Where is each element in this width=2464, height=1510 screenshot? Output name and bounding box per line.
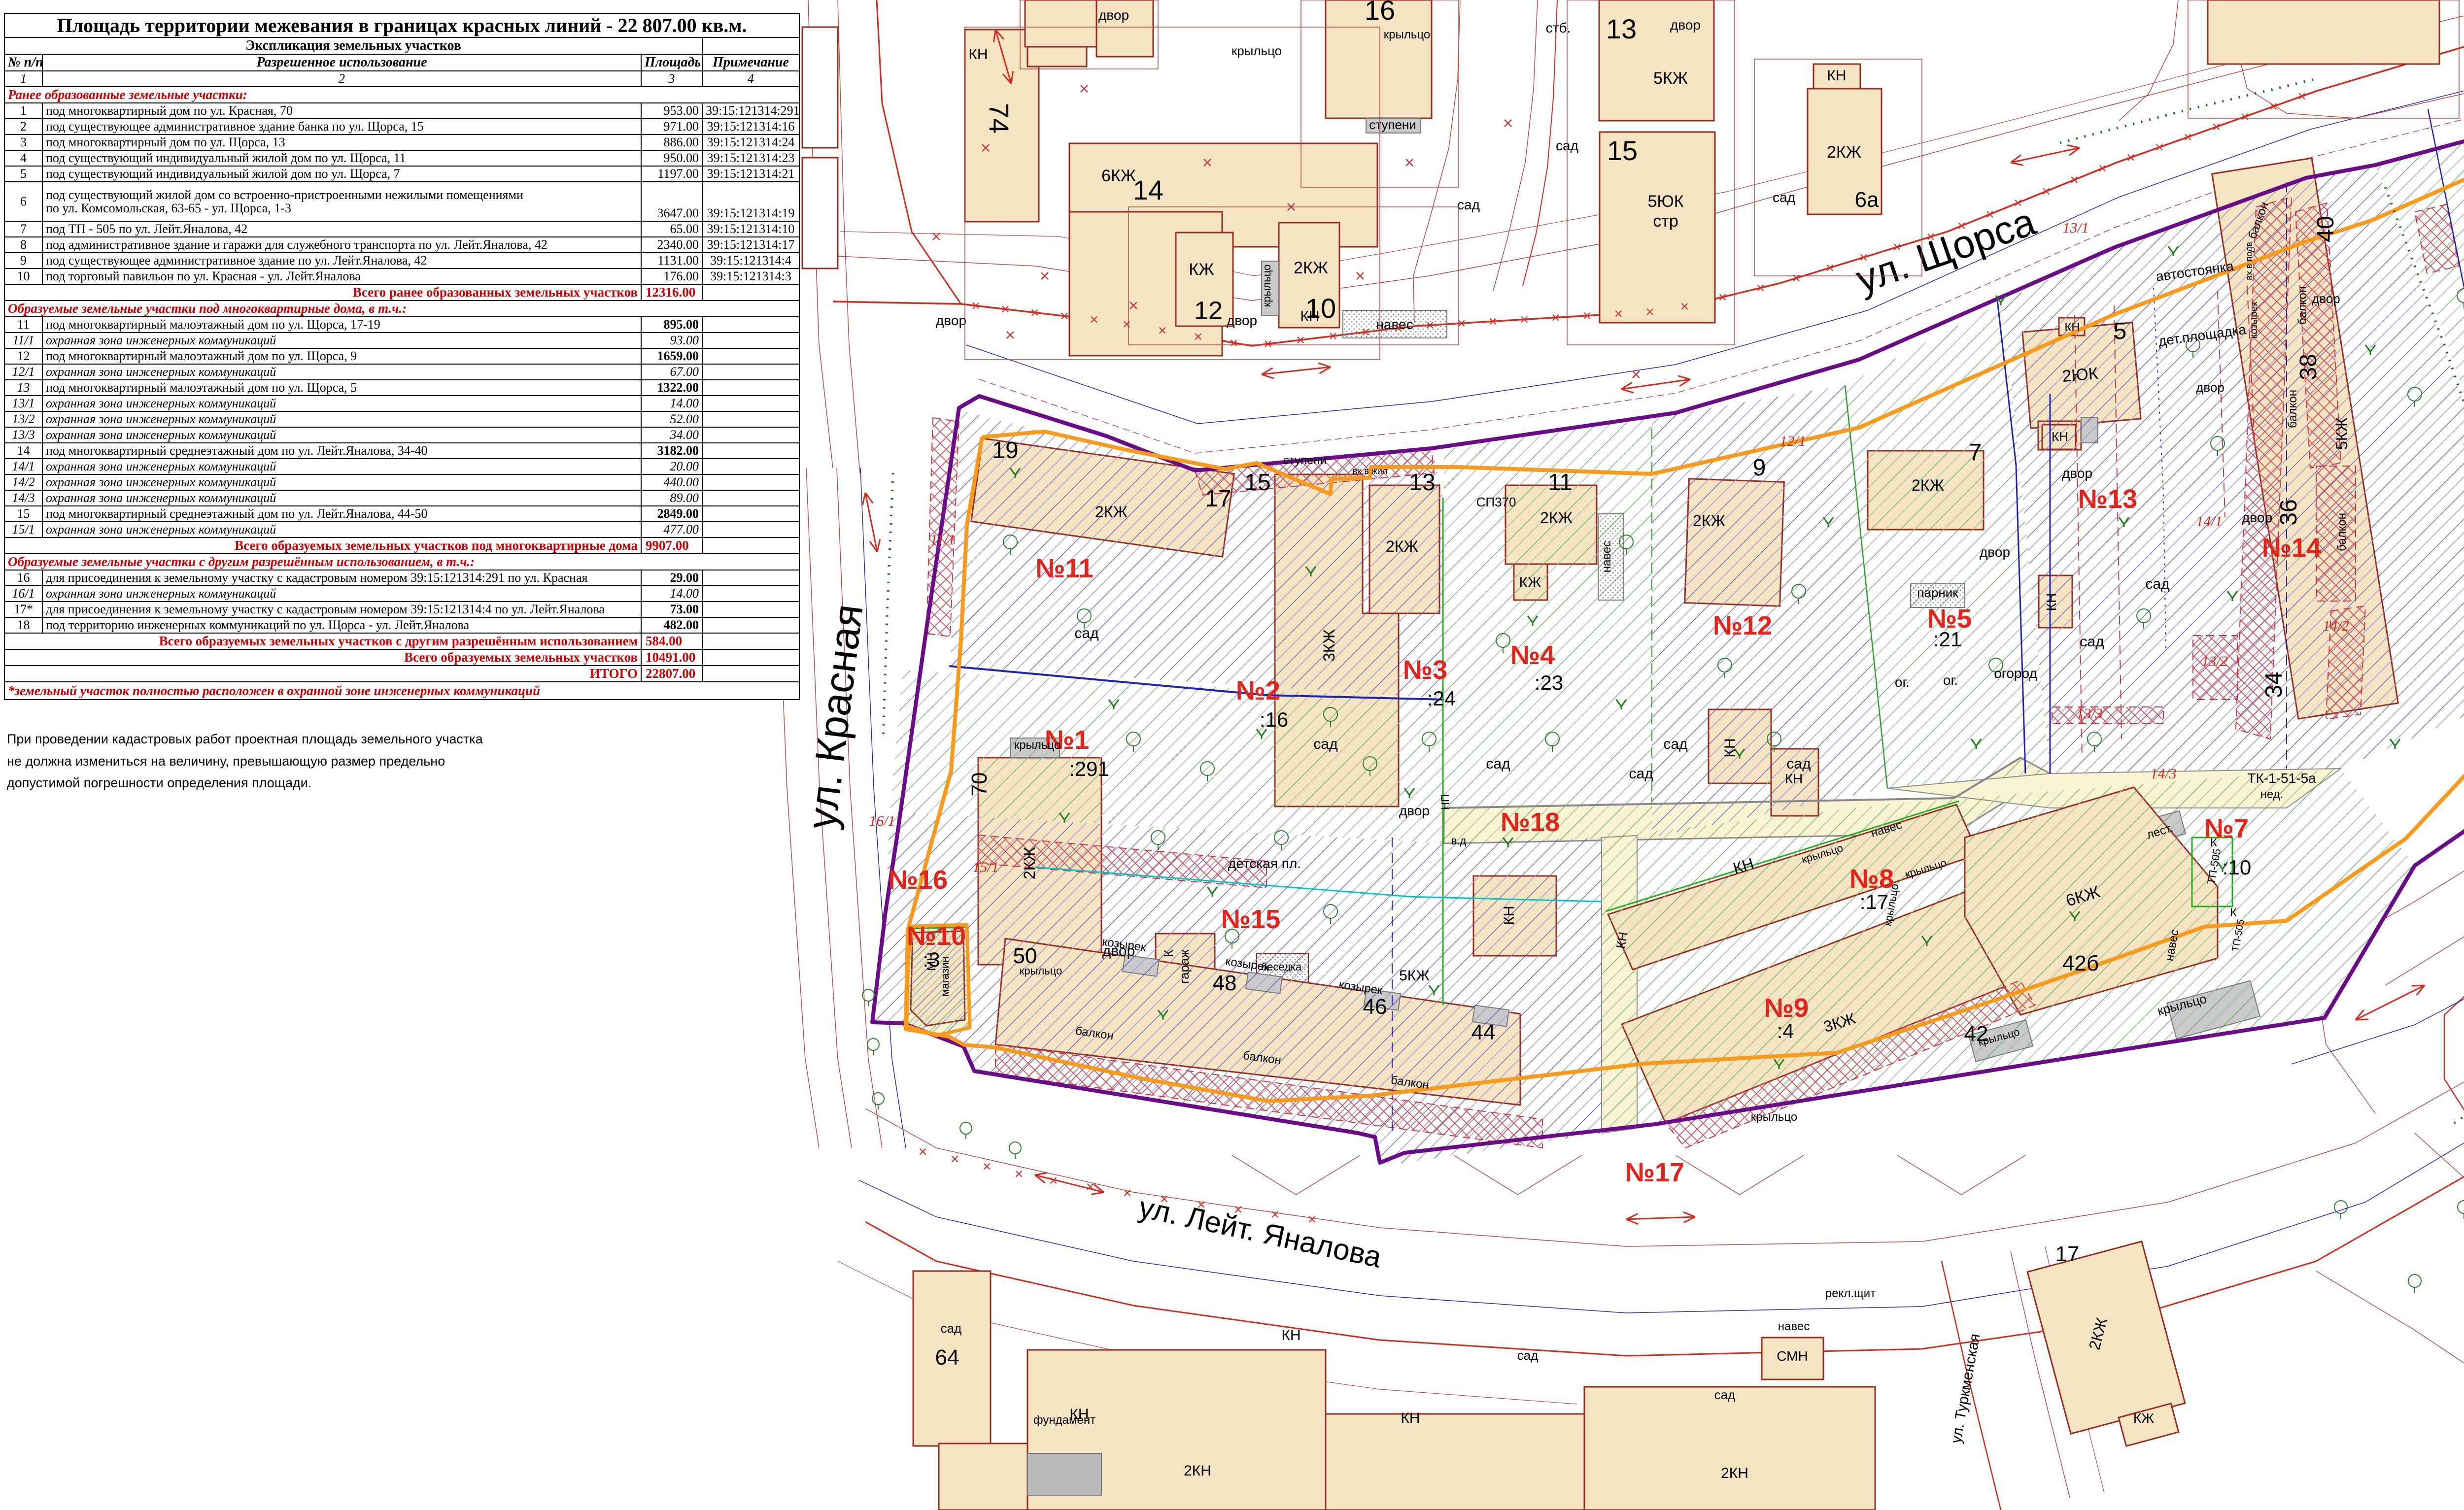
svg-text:КЖ: КЖ <box>1519 574 1541 591</box>
svg-text:крыльцо: крыльцо <box>1751 1110 1797 1124</box>
svg-text:сад: сад <box>941 1321 962 1336</box>
svg-text:17: 17 <box>1205 486 1231 512</box>
svg-text:навес: навес <box>1376 317 1413 332</box>
svg-text:№14: №14 <box>2262 533 2321 563</box>
svg-text:14/1: 14/1 <box>2196 513 2222 530</box>
svg-text:двор: двор <box>2312 291 2340 306</box>
svg-text:навес: навес <box>1600 541 1613 572</box>
svg-text:74: 74 <box>984 103 1015 134</box>
svg-text:11/1: 11/1 <box>930 532 955 548</box>
svg-text:13: 13 <box>1409 470 1435 496</box>
svg-text:70: 70 <box>967 772 992 797</box>
svg-text:двор: двор <box>1227 313 1257 328</box>
svg-text:К: К <box>1161 949 1176 957</box>
svg-text:№3: №3 <box>1403 655 1447 685</box>
svg-text:2КЖ: 2КЖ <box>1095 503 1128 521</box>
svg-text:№11: №11 <box>1035 554 1093 583</box>
svg-text:КН: КН <box>1501 906 1517 925</box>
svg-text:№13: №13 <box>2078 484 2137 514</box>
svg-text:КН: КН <box>1827 67 1846 84</box>
svg-text:5ЮК: 5ЮК <box>1647 192 1683 211</box>
svg-text:16/1: 16/1 <box>869 813 895 829</box>
svg-text:34: 34 <box>2261 671 2287 698</box>
svg-text:48: 48 <box>1213 971 1237 995</box>
svg-text:64: 64 <box>935 1345 959 1370</box>
svg-text::16: :16 <box>1260 708 1288 731</box>
svg-text:двор: двор <box>2196 380 2224 395</box>
svg-text:сад: сад <box>2080 634 2104 650</box>
svg-text:балкон: балкон <box>2335 513 2349 551</box>
svg-text:крыльцо: крыльцо <box>1261 265 1273 307</box>
svg-text:№15: №15 <box>1221 905 1280 934</box>
svg-text:МН: МН <box>925 952 938 971</box>
svg-text::23: :23 <box>1535 671 1563 694</box>
svg-text:ступени: ступени <box>1283 454 1327 467</box>
svg-text:сад: сад <box>1773 190 1795 205</box>
svg-text:2КЖ: 2КЖ <box>1021 847 1038 879</box>
svg-text:5: 5 <box>2114 318 2127 344</box>
svg-text:огород: огород <box>1994 666 2037 681</box>
svg-text:крыльцо: крыльцо <box>1014 738 1061 752</box>
svg-text:ул. Туркменская: ул. Туркменская <box>1948 1333 1984 1445</box>
svg-text:2КЖ: 2КЖ <box>1540 509 1573 527</box>
svg-text:№9: №9 <box>1764 993 1809 1023</box>
svg-text:7: 7 <box>1969 439 1982 466</box>
svg-text:13: 13 <box>1606 13 1637 44</box>
svg-text:13/2: 13/2 <box>2201 653 2227 670</box>
svg-text:№18: №18 <box>1501 807 1560 837</box>
svg-text:42б: 42б <box>2062 951 2099 975</box>
svg-text:сад: сад <box>1663 736 1687 752</box>
svg-text:НП: НП <box>1439 794 1451 810</box>
svg-text:крыльцо: крыльцо <box>1384 28 1430 41</box>
svg-text:двор: двор <box>1980 544 2010 560</box>
svg-text:13/1: 13/1 <box>2062 220 2088 236</box>
svg-text:КН: КН <box>2064 321 2080 334</box>
svg-text:сад: сад <box>1457 197 1480 212</box>
svg-text:14: 14 <box>1133 174 1164 205</box>
svg-text:К: К <box>2230 906 2237 919</box>
svg-text:СП370: СП370 <box>1476 495 1516 509</box>
svg-text:гараж: гараж <box>1177 949 1192 984</box>
svg-text:ТК-1-51-5а: ТК-1-51-5а <box>2247 771 2316 786</box>
svg-text:19: 19 <box>992 437 1018 464</box>
svg-text:№10: №10 <box>907 921 966 951</box>
svg-text:ог.: ог. <box>1895 674 1910 690</box>
svg-text:КЖ: КЖ <box>2133 1410 2154 1426</box>
svg-text:балкон: балкон <box>2296 286 2309 325</box>
svg-text:рекл.щит: рекл.щит <box>1825 1287 1876 1300</box>
svg-text:сад: сад <box>1786 756 1811 772</box>
svg-text:2КН: 2КН <box>1184 1463 1211 1479</box>
svg-text:44: 44 <box>1472 1020 1496 1044</box>
svg-text:11: 11 <box>1548 470 1573 496</box>
svg-text:14/3: 14/3 <box>2150 766 2176 782</box>
svg-text:балкон: балкон <box>2286 390 2299 428</box>
svg-text:36: 36 <box>2276 499 2302 525</box>
svg-text:14/2: 14/2 <box>2323 618 2349 634</box>
svg-text:6а: 6а <box>1855 188 1879 212</box>
svg-text:сад: сад <box>1517 1348 1539 1363</box>
svg-text::291: :291 <box>1069 757 1109 780</box>
svg-text::4: :4 <box>1777 1019 1794 1042</box>
svg-text:навес: навес <box>1778 1320 1810 1333</box>
svg-text:сад: сад <box>1486 756 1510 772</box>
svg-text:№12: №12 <box>1713 611 1772 640</box>
svg-text:детская пл.: детская пл. <box>1228 856 1301 871</box>
svg-text:13/3: 13/3 <box>2076 705 2102 722</box>
svg-text:2КЖ: 2КЖ <box>1294 259 1328 277</box>
svg-text:6КЖ: 6КЖ <box>1101 167 1136 185</box>
svg-text::10: :10 <box>2223 856 2251 879</box>
svg-text:5КЖ: 5КЖ <box>2333 417 2351 450</box>
svg-text::24: :24 <box>1427 687 1456 710</box>
svg-text:КН: КН <box>1401 1410 1420 1426</box>
svg-text:46: 46 <box>1363 995 1387 1019</box>
svg-text:38: 38 <box>2295 354 2322 380</box>
svg-text:9: 9 <box>1753 455 1766 481</box>
svg-text:двор: двор <box>936 313 966 328</box>
svg-text:КН: КН <box>2052 429 2068 444</box>
svg-text:ог.: ог. <box>1943 672 1958 688</box>
svg-text:сад: сад <box>2145 576 2169 592</box>
svg-text:КН: КН <box>1300 308 1319 325</box>
svg-text:2КЖ: 2КЖ <box>1386 537 1418 555</box>
svg-text:двор: двор <box>2062 466 2092 481</box>
svg-text:2КЖ: 2КЖ <box>1912 476 1944 494</box>
svg-text:15: 15 <box>1244 470 1270 496</box>
svg-text:5КЖ: 5КЖ <box>1653 69 1688 88</box>
svg-text:сад: сад <box>1313 736 1337 752</box>
svg-text:КН: КН <box>1722 738 1738 757</box>
svg-text:ул. Красная: ул. Красная <box>798 602 872 832</box>
svg-text:5КЖ: 5КЖ <box>1399 968 1430 984</box>
svg-text:2КН: 2КН <box>1721 1465 1748 1481</box>
svg-text:12: 12 <box>1194 297 1223 325</box>
svg-text:ул. Лейт. Яналова: ул. Лейт. Яналова <box>1136 1190 1385 1274</box>
svg-text:крыльцо: крыльцо <box>1232 43 1282 58</box>
svg-text:фундамент: фундамент <box>1033 1413 1095 1427</box>
svg-text:№16: №16 <box>889 865 948 895</box>
svg-text:2КЖ: 2КЖ <box>1827 143 1861 162</box>
svg-text:КН: КН <box>2044 593 2059 611</box>
svg-text:козырек: козырек <box>2249 302 2259 339</box>
svg-text:двор: двор <box>1399 803 1430 818</box>
svg-text:17: 17 <box>2055 1242 2080 1266</box>
svg-text:12/1: 12/1 <box>1780 433 1806 449</box>
svg-text:2КЖ: 2КЖ <box>1693 512 1725 530</box>
svg-text:№2: №2 <box>1236 676 1280 705</box>
svg-text:магазин: магазин <box>939 956 951 996</box>
svg-text:стр: стр <box>1653 212 1678 231</box>
svg-text:сад: сад <box>1629 766 1653 782</box>
svg-text:двор: двор <box>1098 7 1129 23</box>
svg-text:СМН: СМН <box>1777 1348 1808 1364</box>
svg-text:№4: №4 <box>1510 640 1555 670</box>
svg-text:КН: КН <box>968 46 988 63</box>
svg-text:двор: двор <box>2242 510 2272 525</box>
svg-text:КН: КН <box>1613 931 1630 950</box>
svg-text:двор: двор <box>1670 17 1701 33</box>
svg-text:вх.в подв: вх.в подв <box>2244 242 2254 280</box>
svg-text:3КЖ: 3КЖ <box>1320 629 1338 662</box>
svg-text:16: 16 <box>1365 0 1395 26</box>
svg-text:40: 40 <box>2313 216 2339 242</box>
svg-text:КН: КН <box>1785 771 1803 786</box>
svg-text:50: 50 <box>1013 944 1037 968</box>
svg-text:ступени: ступени <box>1369 117 1416 132</box>
svg-text:15/1: 15/1 <box>972 859 998 875</box>
svg-text:вх.в жил: вх.в жил <box>1353 466 1388 476</box>
svg-text:2ЮК: 2ЮК <box>2061 364 2099 386</box>
svg-text:в.д: в.д <box>1451 835 1467 847</box>
svg-text:сад: сад <box>1714 1387 1736 1402</box>
svg-text:сад: сад <box>1074 625 1098 641</box>
svg-text:КН: КН <box>1281 1327 1300 1343</box>
svg-text::21: :21 <box>1933 628 1962 651</box>
svg-text:К: К <box>2210 836 2217 849</box>
svg-text:нед.: нед. <box>2260 788 2284 801</box>
svg-text:парник: парник <box>1917 585 1958 600</box>
svg-text:№17: №17 <box>1625 1158 1684 1187</box>
svg-text:КЖ: КЖ <box>1189 260 1214 279</box>
svg-text:15: 15 <box>1607 135 1638 166</box>
